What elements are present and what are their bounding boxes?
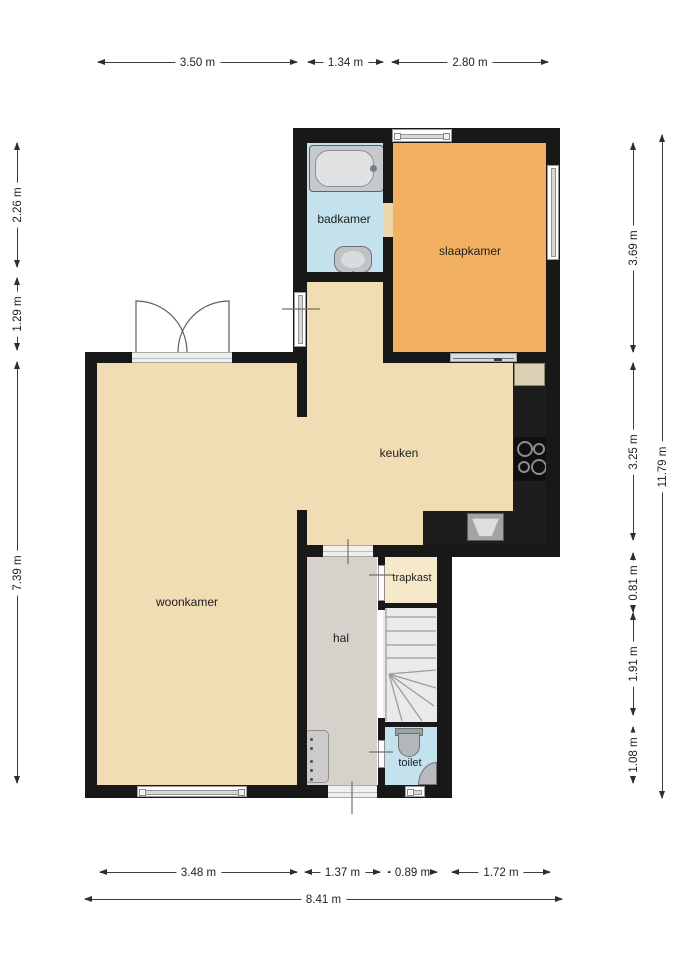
dim-right-3: 0.81 m: [633, 553, 634, 612]
door-toilet: [378, 740, 385, 768]
french-door-left-leaf: [136, 301, 187, 352]
wall-hal-col-b: [378, 601, 385, 610]
label-woonkamer: woonkamer: [156, 595, 218, 609]
bathtub: [309, 145, 384, 192]
wall-hal-col-c: [378, 718, 385, 740]
dim-right-4: 1.91 m: [633, 613, 634, 715]
cooktop-burner: [518, 461, 530, 473]
wall-badkamer-slaapkamer-a: [383, 143, 393, 203]
door-trapkast: [378, 565, 385, 601]
dim-right-total: 11.79 m: [662, 135, 663, 798]
door-opening-badkamer: [383, 203, 393, 237]
cooktop: [514, 437, 546, 481]
window-endcap: [238, 789, 245, 796]
dim-top-2: 1.34 m: [308, 62, 383, 63]
floor-plan-canvas: badkamer slaapkamer keuken woonkamer hal…: [0, 0, 679, 960]
toilet-wc-bowl: [398, 733, 420, 757]
dim-top-3: 2.80 m: [392, 62, 548, 63]
french-door-right-leaf: [178, 301, 229, 352]
label-slaapkamer: slaapkamer: [439, 244, 501, 258]
dim-left-1: 2.26 m: [17, 143, 18, 267]
wall-hal-col-a: [378, 557, 385, 565]
label-keuken: keuken: [380, 446, 419, 460]
window-slaapkamer-right: [547, 165, 559, 260]
front-door: [328, 785, 377, 798]
french-door-sill: [132, 352, 232, 363]
dim-bottom-4: 1.72 m: [452, 872, 550, 873]
label-trapkast: trapkast: [392, 572, 431, 584]
stairs-floor: [383, 608, 437, 722]
dim-bottom-1: 3.48 m: [100, 872, 297, 873]
dim-right-2: 3.25 m: [633, 363, 634, 540]
dim-bottom-total: 8.41 m: [85, 899, 562, 900]
wall-badkamer-bottom: [293, 272, 393, 282]
room-woonkamer-floor: [97, 363, 307, 785]
sliding-door-slaapkamer: [450, 353, 517, 362]
dim-left-3: 7.39 m: [17, 362, 18, 783]
kitchen-counter-cabinet: [514, 363, 545, 386]
label-toilet: toilet: [398, 757, 421, 769]
wall-lower-right: [437, 545, 452, 798]
window-woonkamer-bottom: [137, 786, 247, 797]
room-keuken-corridor-floor: [307, 282, 383, 363]
cooktop-burner: [533, 443, 545, 455]
wall-trapkast-stairs: [383, 603, 437, 608]
wall-stairs-toilet: [383, 722, 437, 727]
dim-right-5: 1.08 m: [633, 727, 634, 783]
bathtub-basin: [315, 150, 374, 187]
radiator: [305, 730, 329, 783]
label-hal: hal: [333, 631, 349, 645]
cooktop-burner: [517, 441, 533, 457]
opening-keuken-hal: [323, 545, 373, 557]
window-endcap: [443, 133, 450, 140]
toilet-badkamer: [334, 246, 372, 273]
wall-hal-col-d: [378, 768, 385, 787]
window-slaapkamer-top: [392, 129, 452, 142]
bathtub-drain: [370, 165, 377, 172]
radiator-dots: [310, 738, 313, 741]
label-badkamer: badkamer: [317, 212, 370, 226]
wall-left: [85, 352, 97, 798]
kitchen-sink: [467, 513, 504, 541]
window-toilet-bottom: [405, 786, 425, 797]
cooktop-burner: [531, 459, 547, 475]
kitchen-sink-basin: [468, 514, 503, 540]
wall-badkamer-slaapkamer-b: [383, 237, 393, 353]
wall-keuken-right: [546, 363, 560, 557]
dim-left-2: 1.29 m: [17, 278, 18, 350]
dim-top-1: 3.50 m: [98, 62, 297, 63]
toilet-badkamer-bowl: [341, 251, 365, 268]
dim-right-1: 3.69 m: [633, 143, 634, 352]
dim-bottom-2: 1.37 m: [305, 872, 380, 873]
window-keuken-left: [294, 292, 306, 347]
wall-woonkamer-keuken-a: [297, 363, 307, 417]
dim-bottom-3: 0.89 m: [388, 872, 437, 873]
